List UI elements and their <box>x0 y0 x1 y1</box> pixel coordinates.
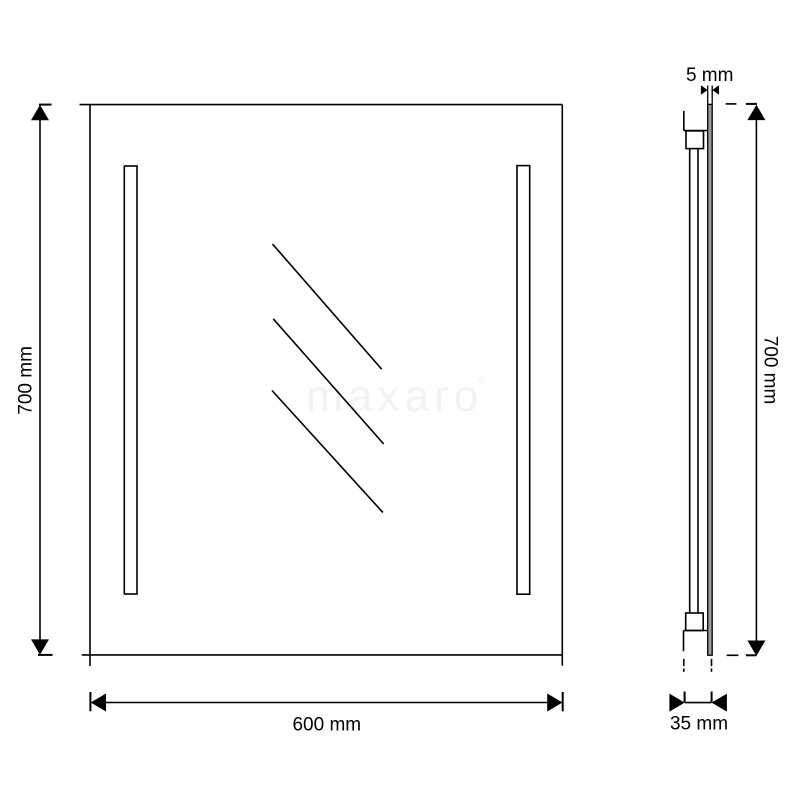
svg-text:700 mm: 700 mm <box>16 346 37 415</box>
svg-text:5 mm: 5 mm <box>686 65 734 86</box>
svg-text:700 mm: 700 mm <box>760 336 781 405</box>
svg-text:35 mm: 35 mm <box>670 714 728 735</box>
svg-text:maxaro: maxaro <box>306 372 483 421</box>
svg-text:600 mm: 600 mm <box>292 715 361 736</box>
svg-text:°: ° <box>477 372 486 397</box>
